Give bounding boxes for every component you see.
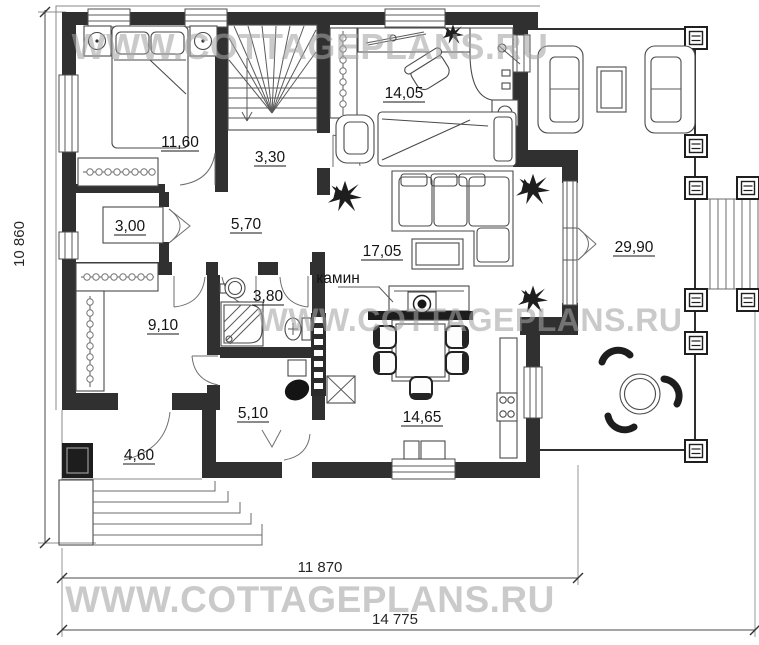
fireplace-annotation: камин [316, 270, 393, 302]
porch-and-steps [59, 443, 262, 545]
door-terrace [578, 228, 596, 260]
room-label-bedroom: 11,60 [161, 134, 199, 151]
window-left-closet [59, 232, 78, 259]
watermark-middle: WWW.COTTAGEPLANS.RU [258, 302, 683, 338]
terrace-sofa-right [645, 46, 695, 133]
door-closet [169, 209, 190, 243]
watermark-top: WWW.COTTAGEPLANS.RU [72, 26, 549, 67]
room-label-closet: 3,00 [115, 218, 146, 235]
dining-chair [446, 352, 468, 374]
door-wardrobe-corridor [192, 356, 218, 385]
fireplace-label: камин [316, 270, 360, 287]
entrance-steps [93, 481, 262, 545]
door-hall-wardrobe [174, 276, 205, 307]
window-kitchen-south [392, 459, 455, 479]
window-top-2 [185, 9, 227, 27]
room-label-stairs: 3,30 [255, 149, 286, 166]
stair-direction-arrow [242, 58, 252, 121]
bedroom-wardrobe [78, 158, 158, 186]
porch-slab [59, 480, 93, 545]
window-left-bedroom [59, 75, 78, 152]
dimension-left: 10 860 [11, 221, 28, 267]
glazing-living-bay [563, 181, 577, 305]
window-top-1 [88, 9, 130, 27]
terrace-column [685, 135, 707, 157]
sink [220, 278, 245, 298]
floor-plan-drawing: 10 860 11 870 14 775 [0, 0, 759, 645]
stove [497, 393, 517, 421]
terrace-column [685, 440, 707, 462]
window-top-3 [385, 9, 445, 27]
plant-icon [328, 181, 362, 212]
terrace-round-table [602, 350, 679, 430]
study-armchair [336, 115, 374, 163]
door-entrance [262, 430, 310, 460]
terrace-column [685, 289, 707, 311]
window-kitchen-east [524, 367, 542, 418]
living-furniture [328, 171, 550, 320]
terrace-side-steps [707, 199, 758, 289]
single-bed [378, 112, 516, 166]
plant-icon [516, 174, 550, 205]
room-label-corridor: 5,10 [238, 405, 269, 422]
terrace-column [685, 332, 707, 354]
door-bedroom [180, 153, 215, 185]
room-label-study: 14,05 [385, 85, 424, 102]
appliance-box [327, 376, 355, 403]
room-label-living: 17,05 [363, 243, 402, 260]
dimension-bottom-inner: 11 870 [298, 559, 343, 576]
dining-chair [410, 377, 432, 399]
room-label-terrace: 29,90 [615, 239, 654, 256]
watermark-bottom: WWW.COTTAGEPLANS.RU [65, 579, 555, 620]
coffee-table [412, 239, 463, 269]
wardrobe-room-closets [76, 263, 158, 391]
room-label-kitchen: 14,65 [403, 409, 442, 426]
room-label-porch: 4,60 [124, 447, 155, 464]
terrace-small-table [597, 67, 626, 112]
black-armchair [282, 376, 313, 404]
corridor-furniture [282, 360, 313, 404]
floor-plan-page: 10 860 11 870 14 775 [0, 0, 759, 645]
room-label-wardrobe: 9,10 [148, 317, 179, 334]
terrace-column [685, 27, 707, 49]
dining-chair [374, 352, 396, 374]
terrace-column [737, 177, 759, 199]
terrace-column [685, 177, 707, 199]
room-label-hall: 5,70 [231, 216, 262, 233]
terrace-column [737, 289, 759, 311]
